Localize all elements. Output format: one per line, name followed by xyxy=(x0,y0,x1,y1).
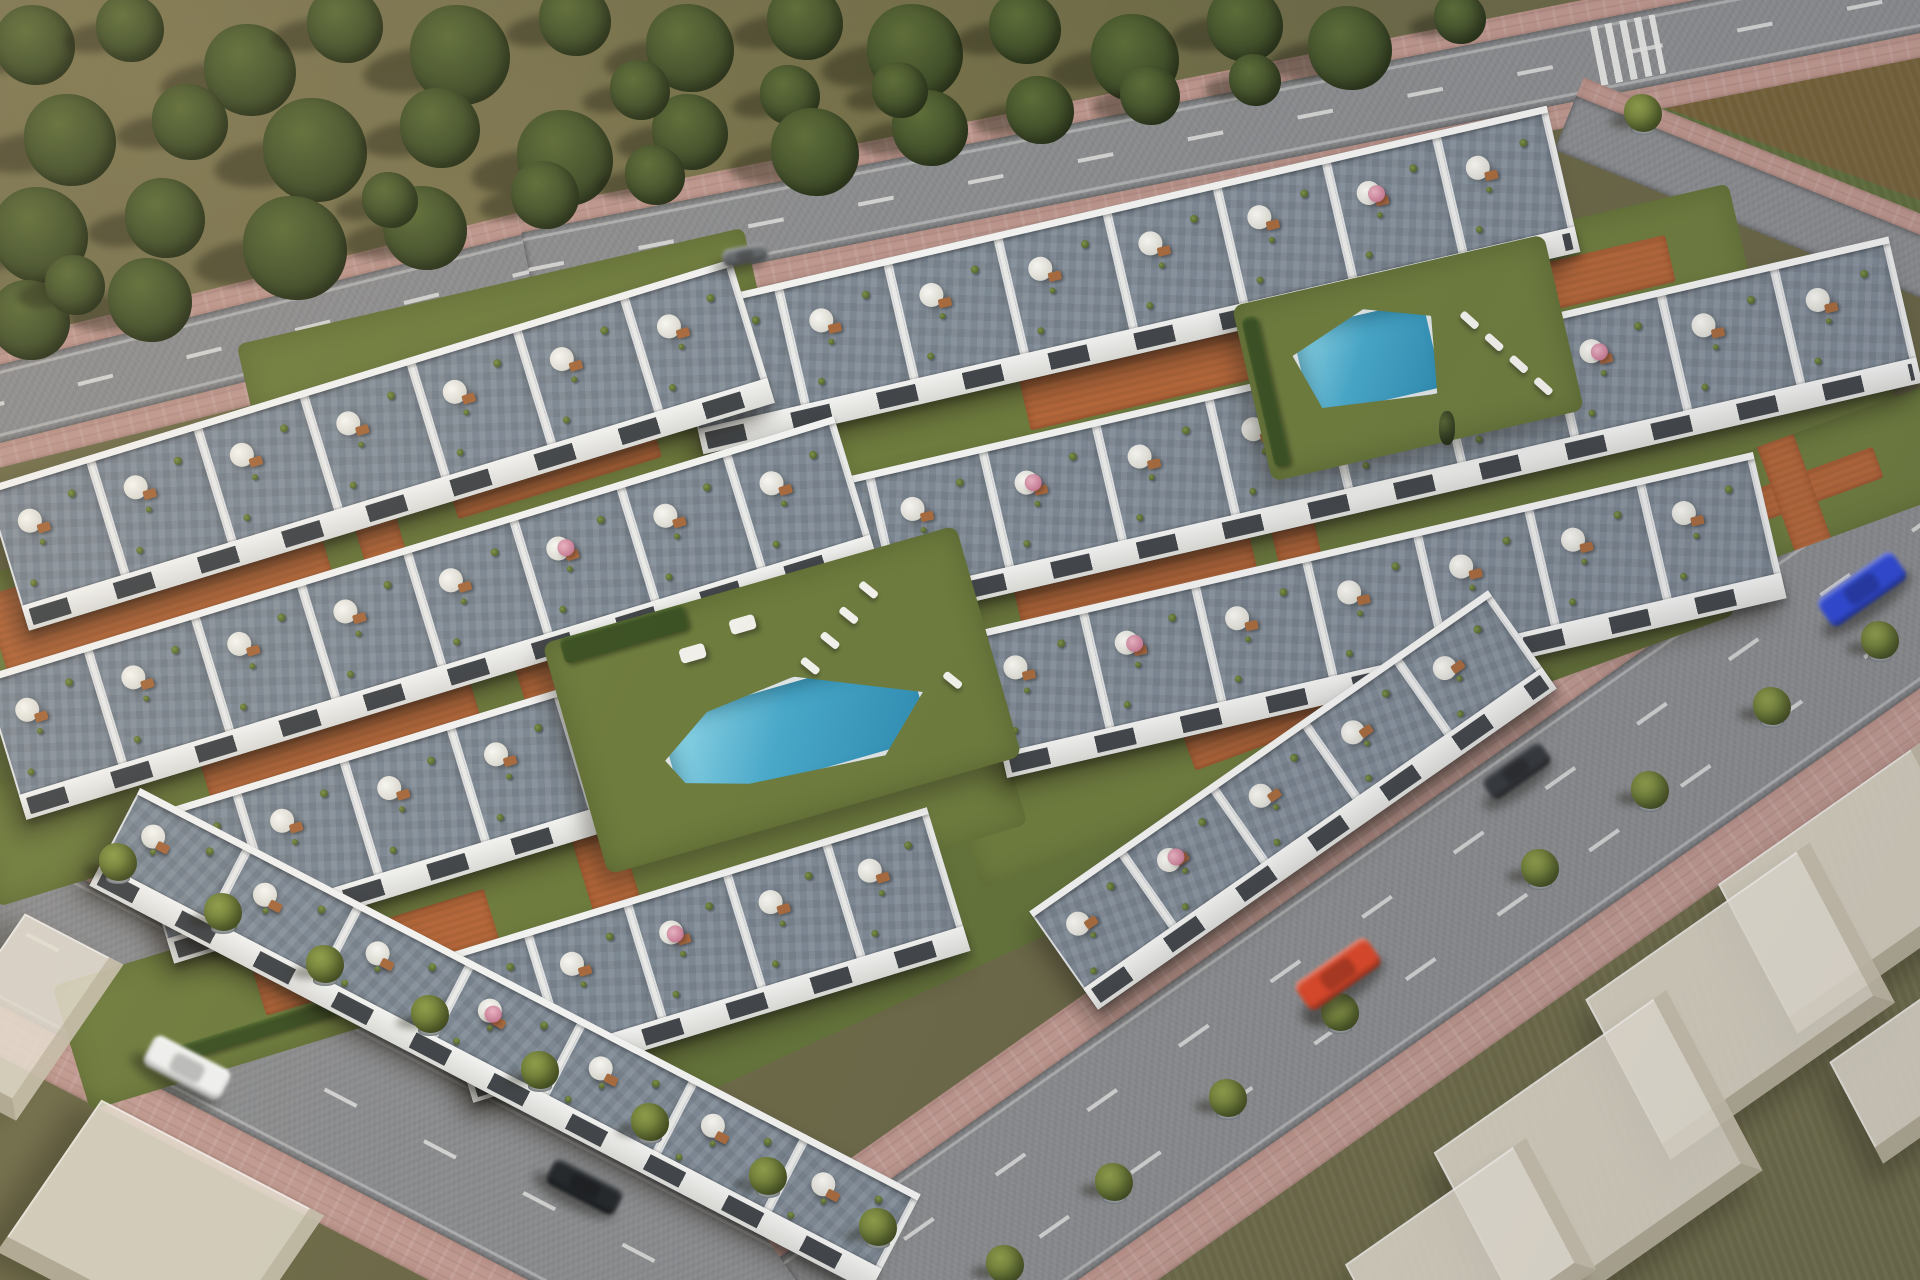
terrace-plant xyxy=(1724,484,1734,494)
terrace-plant xyxy=(1299,189,1309,199)
terrace-plant xyxy=(1268,236,1275,243)
terrace-table xyxy=(714,1130,730,1144)
terrace-plant xyxy=(1036,327,1044,335)
terrace-plant xyxy=(920,526,927,533)
terrace-plant xyxy=(133,735,142,744)
tree-canopy xyxy=(1207,0,1283,62)
crosswalk xyxy=(1590,14,1666,86)
tree-canopy xyxy=(1006,76,1074,144)
terrace-plant xyxy=(1272,803,1280,811)
sun-lounger xyxy=(942,670,963,689)
tree-canopy xyxy=(0,5,75,85)
terrace-plant xyxy=(808,450,818,460)
terrace-plant xyxy=(261,907,269,915)
grove-tree xyxy=(263,98,367,202)
swimming-pool xyxy=(653,644,937,814)
terrace-plant xyxy=(349,481,358,490)
terrace-plant xyxy=(389,846,398,855)
terrace-plant xyxy=(1502,536,1512,546)
tree-canopy xyxy=(45,255,105,315)
terrace-plant xyxy=(786,1210,795,1219)
grove-tree xyxy=(0,5,75,85)
street-tree xyxy=(1861,621,1899,659)
terrace-plant xyxy=(665,572,674,581)
terrace-plant xyxy=(496,813,505,822)
tree-canopy xyxy=(99,843,137,881)
terrace-plant xyxy=(771,960,780,969)
terrace-plant xyxy=(1158,262,1165,269)
terrace-plant xyxy=(1196,816,1207,827)
terrace-plant xyxy=(1123,701,1131,709)
tree-canopy xyxy=(872,62,928,118)
terrace-table xyxy=(34,711,49,723)
terrace-plant xyxy=(242,513,251,522)
terrace-plant xyxy=(678,343,685,350)
tree-canopy xyxy=(511,161,579,229)
terrace-plant xyxy=(599,326,609,336)
terrace-plant xyxy=(1409,163,1419,173)
terrace-plant xyxy=(1377,211,1384,218)
terrace-plant xyxy=(29,578,38,587)
terrace-plant xyxy=(463,408,470,415)
terrace-plant xyxy=(1380,688,1391,699)
grove-tree xyxy=(1229,54,1281,106)
terrace-plant xyxy=(1365,251,1373,259)
grove-tree xyxy=(152,84,228,160)
terrace-plant xyxy=(204,846,215,857)
terrace-plant xyxy=(1475,225,1483,233)
terrace-table xyxy=(1468,568,1483,580)
terrace-table xyxy=(1266,219,1281,231)
terrace-plant xyxy=(136,546,145,555)
terrace-plant xyxy=(249,662,256,669)
terrace-plant xyxy=(1474,435,1482,443)
terrace-plant xyxy=(1357,610,1364,617)
street-tree xyxy=(1095,1163,1133,1201)
terrace-plant xyxy=(570,376,577,383)
terrace-plant xyxy=(903,840,913,850)
terrace-table xyxy=(1356,594,1371,606)
sun-lounger xyxy=(838,605,859,624)
sun-lounger xyxy=(1459,310,1480,330)
tree-canopy xyxy=(411,995,449,1033)
terrace-plant xyxy=(702,482,712,492)
cypress-tree xyxy=(1439,411,1455,445)
terrace-plant xyxy=(1825,317,1832,324)
terrace-table xyxy=(603,1073,619,1087)
terrace-plant xyxy=(1180,867,1188,875)
terrace-table xyxy=(267,899,283,913)
tree-canopy xyxy=(243,196,347,300)
terrace-plant xyxy=(861,290,871,300)
terrace-plant xyxy=(955,478,965,488)
terrace-table xyxy=(355,424,370,436)
terrace-table xyxy=(142,488,157,500)
tree-canopy xyxy=(539,0,611,56)
tree-canopy xyxy=(1095,1163,1133,1201)
tree-canopy xyxy=(263,98,367,202)
terrace-plant xyxy=(1390,562,1400,572)
sun-lounger xyxy=(799,656,820,675)
terrace-plant xyxy=(486,1024,494,1032)
street-tree xyxy=(631,1103,669,1141)
terrace-plant xyxy=(386,391,396,401)
terrace-plant xyxy=(1700,383,1708,391)
grove-tree xyxy=(1207,0,1283,62)
terrace-plant xyxy=(563,1094,572,1103)
grove-tree xyxy=(24,94,116,186)
terrace-plant xyxy=(1518,138,1528,148)
terrace-table xyxy=(827,322,842,334)
terrace-plant xyxy=(149,849,157,857)
tree-canopy xyxy=(859,1208,897,1246)
terrace-table xyxy=(352,612,367,624)
terrace-plant xyxy=(1613,510,1623,520)
terrace-plant xyxy=(1472,623,1483,634)
sun-lounger xyxy=(858,580,879,599)
garden-sofa xyxy=(678,643,707,665)
terrace-table xyxy=(825,1189,841,1203)
terrace-plant xyxy=(539,1020,550,1031)
terrace-plant xyxy=(870,929,879,938)
tree-canopy xyxy=(1229,54,1281,106)
tree-canopy xyxy=(400,88,480,168)
tree-canopy xyxy=(1209,1079,1247,1117)
tree-canopy xyxy=(1624,94,1662,132)
terrace-plant xyxy=(1255,276,1263,284)
grove-tree xyxy=(96,0,164,62)
tree-canopy xyxy=(1120,65,1180,125)
terrace-plant xyxy=(668,383,677,392)
grove-tree xyxy=(989,0,1061,64)
terrace-plant xyxy=(562,416,571,425)
terrace-plant xyxy=(357,441,364,448)
terrace-plant xyxy=(452,637,461,646)
street-tree xyxy=(521,1051,559,1089)
terrace-plant xyxy=(36,727,43,734)
street-tree xyxy=(99,843,137,881)
terrace-plant xyxy=(804,871,814,881)
street-tree xyxy=(204,893,242,931)
terrace-plant xyxy=(373,966,381,974)
terrace-plant xyxy=(533,723,543,733)
terrace-plant xyxy=(1080,239,1090,249)
terrace-plant xyxy=(673,532,680,539)
terrace-plant xyxy=(173,456,183,466)
terrace-plant xyxy=(1148,474,1155,481)
terrace-plant xyxy=(762,1136,773,1147)
terrace-plant xyxy=(39,538,46,545)
terrace-plant xyxy=(1587,409,1595,417)
sun-lounger xyxy=(819,631,840,650)
tree-canopy xyxy=(1631,771,1669,809)
terrace-plant xyxy=(489,547,499,557)
terrace-table xyxy=(1147,458,1162,470)
terrace-plant xyxy=(1813,357,1821,365)
terrace-plant xyxy=(239,702,248,711)
terrace-plant xyxy=(398,805,405,812)
tree-canopy xyxy=(1434,0,1486,44)
terrace-plant xyxy=(1279,587,1289,597)
grove-tree xyxy=(625,145,685,205)
terrace-plant xyxy=(455,448,464,457)
street-tree xyxy=(306,945,344,983)
terrace-plant xyxy=(1679,572,1687,580)
terrace-plant xyxy=(276,612,286,622)
terrace-plant xyxy=(671,990,680,999)
sun-lounger xyxy=(1533,376,1554,396)
terrace-plant xyxy=(1248,487,1256,495)
terrace-plant xyxy=(279,423,289,433)
street-tree xyxy=(749,1157,787,1195)
grove-tree xyxy=(771,108,859,196)
grove-tree xyxy=(1120,65,1180,125)
terrace-plant xyxy=(1034,500,1041,507)
terrace-plant xyxy=(1234,675,1242,683)
grove-tree xyxy=(511,161,579,229)
terrace-plant xyxy=(927,352,935,360)
terrace-plant xyxy=(1361,461,1369,469)
terrace-plant xyxy=(1455,709,1465,719)
tree-canopy xyxy=(749,1157,787,1195)
terrace-table xyxy=(379,957,395,971)
terrace-plant xyxy=(1600,369,1607,376)
garden-sofa xyxy=(728,613,757,635)
terrace-plant xyxy=(251,473,258,480)
terrace-table xyxy=(1022,669,1037,681)
terrace-table xyxy=(249,456,264,468)
terrace-plant xyxy=(27,768,36,777)
terrace-plant xyxy=(650,1078,661,1089)
grove-tree xyxy=(45,255,105,315)
tree-canopy xyxy=(631,1103,669,1141)
terrace-plant xyxy=(817,377,825,385)
grove-tree xyxy=(125,178,205,258)
street-tree xyxy=(1631,771,1669,809)
grove-tree xyxy=(610,60,670,120)
terrace-table xyxy=(1047,271,1062,283)
tree-canopy xyxy=(1753,687,1791,725)
terrace-plant xyxy=(1068,452,1078,462)
terrace-plant xyxy=(505,962,515,972)
grove-tree xyxy=(362,172,418,228)
terrace-plant xyxy=(704,901,714,911)
terrace-plant xyxy=(460,598,467,605)
terrace-plant xyxy=(355,630,362,637)
terrace-plant xyxy=(706,293,716,303)
terrace-plant xyxy=(1056,639,1066,649)
terrace-plant xyxy=(1362,739,1370,747)
terrace-plant xyxy=(1190,214,1200,224)
street-tree xyxy=(1624,94,1662,132)
terrace-plant xyxy=(143,695,150,702)
street-tree xyxy=(1209,1079,1247,1117)
grove-tree xyxy=(767,0,843,60)
terrace-plant xyxy=(970,265,980,275)
terrace-plant xyxy=(1288,752,1299,763)
terrace-plant xyxy=(709,1140,717,1148)
terrace-plant xyxy=(1272,837,1282,847)
terrace-table xyxy=(1579,542,1594,554)
terrace-plant xyxy=(291,838,298,845)
tree-canopy xyxy=(204,893,242,931)
street-tree xyxy=(986,1245,1024,1280)
tree-canopy xyxy=(610,60,670,120)
terrace-plant xyxy=(566,565,573,572)
terrace-plant xyxy=(1746,295,1756,305)
tree-canopy xyxy=(125,178,205,258)
terrace-plant xyxy=(1364,773,1374,783)
terrace-plant xyxy=(426,756,436,766)
sun-lounger xyxy=(1508,354,1529,374)
terrace-plant xyxy=(427,962,438,973)
terrace-table xyxy=(1157,245,1172,257)
terrace-plant xyxy=(1581,558,1588,565)
tree-canopy xyxy=(362,172,418,228)
grove-tree xyxy=(872,62,928,118)
terrace-plant xyxy=(319,788,329,798)
grove-tree xyxy=(108,258,192,342)
tree-canopy xyxy=(625,145,685,205)
terrace-plant xyxy=(492,358,502,368)
terrace-plant xyxy=(1469,584,1476,591)
terrace-plant xyxy=(1633,321,1643,331)
terrace-plant xyxy=(771,540,780,549)
terrace-plant xyxy=(1859,269,1869,279)
tree-canopy xyxy=(767,0,843,60)
tree-canopy xyxy=(1521,849,1559,887)
terrace-table xyxy=(1824,301,1839,313)
terrace-table xyxy=(1484,170,1499,182)
terrace-plant xyxy=(1692,532,1699,539)
terrace-table xyxy=(937,296,952,308)
terrace-plant xyxy=(145,506,152,513)
terrace-plant xyxy=(505,773,512,780)
terrace-plant xyxy=(828,338,835,345)
terrace-plant xyxy=(605,932,615,942)
terrace-plant xyxy=(1455,674,1463,682)
terrace-plant xyxy=(779,920,786,927)
terrace-plant xyxy=(1180,901,1190,911)
terrace-table xyxy=(289,822,304,834)
terrace-plant xyxy=(819,1198,827,1206)
terrace-plant xyxy=(878,889,885,896)
terrace-plant xyxy=(1167,613,1177,623)
terrace-plant xyxy=(66,488,76,498)
tree-canopy xyxy=(307,0,383,63)
street-tree xyxy=(859,1208,897,1246)
terrace-plant xyxy=(346,670,355,679)
terrace-plant xyxy=(170,645,180,655)
terrace-plant xyxy=(1181,426,1191,436)
tree-canopy xyxy=(771,108,859,196)
tree-canopy xyxy=(521,1051,559,1089)
tree-canopy xyxy=(96,0,164,62)
tree-canopy xyxy=(152,84,228,160)
terrace-plant xyxy=(675,1152,684,1161)
terrace-table xyxy=(458,581,473,593)
tree-canopy xyxy=(1861,621,1899,659)
tree-canopy xyxy=(306,945,344,983)
terrace-plant xyxy=(873,1194,884,1205)
grove-tree xyxy=(400,88,480,168)
swimming-pool xyxy=(1286,295,1449,424)
terrace-plant xyxy=(597,1082,605,1090)
terrace-plant xyxy=(316,904,327,915)
terrace-table xyxy=(919,510,934,522)
terrace-plant xyxy=(1024,687,1031,694)
terrace-table xyxy=(1244,619,1259,631)
terrace-plant xyxy=(452,1036,461,1045)
terrace-plant xyxy=(596,515,606,525)
tree-canopy xyxy=(24,94,116,186)
street-tree xyxy=(411,995,449,1033)
tree-canopy xyxy=(1308,6,1392,90)
sun-lounger xyxy=(1483,332,1504,352)
terrace-plant xyxy=(1135,513,1143,521)
terrace-plant xyxy=(1105,880,1116,891)
terrace-plant xyxy=(1345,649,1353,657)
terrace-plant xyxy=(1486,186,1493,193)
terrace-plant xyxy=(780,500,787,507)
terrace-plant xyxy=(1022,540,1030,548)
terrace-plant xyxy=(64,677,74,687)
terrace-table xyxy=(155,841,171,855)
street-tree xyxy=(1521,849,1559,887)
terrace-plant xyxy=(1568,598,1576,606)
terrace-plant xyxy=(751,315,761,325)
terrace-plant xyxy=(938,312,945,319)
terrace-plant xyxy=(1049,287,1056,294)
aerial-architectural-rendering xyxy=(0,0,1920,1280)
grove-tree xyxy=(1308,6,1392,90)
terrace-table xyxy=(1711,327,1726,339)
grove-tree xyxy=(1434,0,1486,44)
tree-canopy xyxy=(989,0,1061,64)
terrace-plant xyxy=(1089,931,1097,939)
terrace-plant xyxy=(579,981,586,988)
grove-tree xyxy=(539,0,611,56)
terrace-plant xyxy=(1134,661,1141,668)
terrace-plant xyxy=(679,950,686,957)
street-tree xyxy=(1753,687,1791,725)
tree-canopy xyxy=(986,1245,1024,1280)
terrace-plant xyxy=(559,605,568,614)
terrace-table xyxy=(1691,515,1706,527)
tree-canopy xyxy=(108,258,192,342)
terrace-plant xyxy=(1088,966,1098,976)
grove-tree xyxy=(243,196,347,300)
terrace-plant xyxy=(1146,301,1154,309)
terrace-plant xyxy=(1712,344,1719,351)
terrace-plant xyxy=(383,580,393,590)
terrace-plant xyxy=(1245,636,1252,643)
grove-tree xyxy=(307,0,383,63)
grove-tree xyxy=(1006,76,1074,144)
